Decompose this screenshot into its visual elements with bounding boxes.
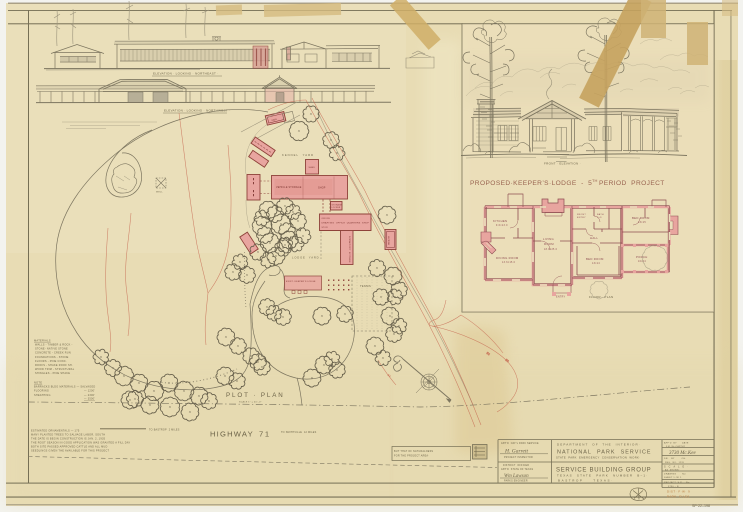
svg-text:EXIST· KEEPER’S LODGE: EXIST· KEEPER’S LODGE	[286, 281, 316, 283]
svg-text:PROJECT S.P. No·: PROJECT S.P. No·	[664, 482, 690, 484]
svg-text:PLOT · PLAN: PLOT · PLAN	[226, 392, 285, 399]
svg-text:BED ROOM: BED ROOM	[632, 216, 650, 220]
svg-text:FRONT: FRONT	[577, 214, 586, 216]
svg-text:BATH: BATH	[597, 213, 604, 216]
svg-text:S C A L E ·: S C A L E ·	[664, 466, 689, 469]
svg-text:BED ROOM: BED ROOM	[586, 257, 604, 261]
svg-text:PORCH: PORCH	[636, 255, 648, 259]
svg-text:9·6×13·0: 9·6×13·0	[496, 224, 508, 227]
svg-text:FLOORING: FLOORING	[34, 390, 49, 393]
svg-text:STATE PARK EMERGENCY CONSER: STATE PARK EMERGENCY CONSERVATION WORK·	[556, 455, 640, 459]
svg-text:DEPARTMENT OF THE INTERIOR·: DEPARTMENT OF THE INTERIOR·	[557, 442, 641, 446]
svg-text:DINING ROOM: DINING ROOM	[496, 256, 519, 260]
svg-text:BOTH SITE PASSED APPROVED CAT: BOTH SITE PASSED APPROVED CATTLE AND ALL…	[31, 446, 108, 449]
svg-text:CONCRETE - CREEK RUN: CONCRETE - CREEK RUN	[35, 352, 71, 355]
svg-text:NOTE: NOTE	[34, 381, 42, 385]
svg-text:TENNIS: TENNIS	[360, 284, 371, 288]
svg-text:THE DATE IS BEGIN CONSTRUCTIO: THE DATE IS BEGIN CONSTRUCTION IS JAN. 2…	[31, 438, 106, 441]
svg-text:SHOP: SHOP	[318, 187, 326, 190]
svg-text:3730 Mc.Kee: 3730 Mc.Kee	[669, 451, 696, 456]
svg-text:FOUNDATIONS - STONE: FOUNDATIONS - STONE	[35, 356, 69, 359]
svg-text:ENTRY: ENTRY	[556, 296, 566, 299]
svg-text:NATIONAL PARK SERVICE: NATIONAL PARK SERVICE	[557, 450, 652, 456]
svg-text:DRAFTING OFFICE QUARTERS SH: DRAFTING OFFICE QUARTERS SHOP	[322, 222, 370, 225]
svg-text:WOOD TRIM - STRUCTURAL: WOOD TRIM - STRUCTURAL	[35, 368, 75, 371]
svg-text:DRAWING No·: DRAWING No·	[664, 473, 687, 476]
svg-text:F.M. Mc-CARTHY: F.M. Mc-CARTHY	[666, 445, 686, 448]
svg-text:VEHICLE STORAGE: VEHICLE STORAGE	[276, 186, 302, 189]
svg-text:WALLS - TIMBER & ROCK -: WALLS - TIMBER & ROCK -	[35, 344, 73, 347]
svg-text:KENNEL YARD: KENNEL YARD	[282, 153, 314, 157]
svg-text:SCALE 1″ = 40′–0″: SCALE 1″ = 40′–0″	[239, 401, 262, 404]
svg-text:BUT THAT OF NATURALNESS: BUT THAT OF NATURALNESS	[394, 450, 433, 453]
svg-text:DORMITORY KITCHEN: DORMITORY KITCHEN	[348, 236, 350, 263]
svg-text:STONE- NATIVE STONE: STONE- NATIVE STONE	[35, 348, 68, 351]
svg-text:TO BASTROP 2 MILES: TO BASTROP 2 MILES	[149, 429, 180, 432]
svg-text:TEXAS STATE PARK NUMBER B–: TEXAS STATE PARK NUMBER B–1·	[557, 473, 648, 477]
svg-text:BARRACKS BLDG MATERIALS — SALV: BARRACKS BLDG MATERIALS — SALVAGED	[34, 386, 95, 389]
svg-text:PARKS ENGINEER: PARKS ENGINEER	[504, 480, 528, 483]
svg-text:7×9: 7×9	[597, 216, 602, 219]
svg-text:AS SHOWN·: AS SHOWN·	[665, 469, 680, 472]
svg-text:WELL: WELL	[156, 192, 163, 194]
svg-text:MANY PLANTED TREES TO SALVAGE: MANY PLANTED TREES TO SALVAGE LABOR, SOU…	[31, 434, 105, 437]
svg-text:13·6×15·0: 13·6×15·0	[502, 261, 516, 264]
svg-text:DIST· F·W· 9: DIST· F·W· 9	[667, 490, 690, 494]
svg-text:TH: TH	[592, 178, 597, 183]
svg-text:DISTRICT OFFICER: DISTRICT OFFICER	[503, 465, 529, 467]
svg-text:ENTRY: ENTRY	[577, 217, 586, 219]
svg-text:SHED: SHED	[309, 167, 316, 169]
svg-text:STOR: STOR	[322, 227, 329, 229]
svg-text:ESTIMATED ORNAMENTALS — 175: ESTIMATED ORNAMENTALS — 175	[31, 430, 80, 433]
svg-text:LODGE YARD: LODGE YARD	[292, 256, 319, 260]
svg-text:3730 – B: 3730 – B	[668, 486, 679, 488]
svg-text:ROOFS - SHAKE ROOF SH.: ROOFS - SHAKE ROOF SH.	[35, 364, 73, 367]
svg-text:13×14: 13×14	[592, 262, 600, 265]
svg-text:PROPOSED·KEEPER’S·LODGE - 5: PROPOSED·KEEPER’S·LODGE - 5	[470, 180, 592, 187]
svg-text:71: 71	[259, 430, 271, 439]
svg-text:PROJECT INSPECTOR: PROJECT INSPECTOR	[504, 457, 533, 459]
svg-text:KITCHEN: KITCHEN	[493, 219, 507, 223]
svg-text:LIVING: LIVING	[543, 237, 554, 241]
svg-text:SHEET 1 OF 1: SHEET 1 OF 1	[664, 477, 682, 479]
svg-text:SP·22–198: SP·22–198	[692, 504, 710, 508]
svg-text:— 3500′: — 3500′	[84, 398, 95, 401]
svg-text:HIGHWAY: HIGHWAY	[210, 430, 254, 439]
svg-text:18·0×25·0: 18·0×25·0	[544, 248, 558, 251]
svg-text:ELEVATION · LOOKING · NORTHEAS: ELEVATION · LOOKING · NORTHEAST ·	[153, 72, 219, 76]
svg-text:SHEATHING: SHEATHING	[34, 394, 51, 397]
svg-text:THE ROOT SEASON IN GOOD APPLIC: THE ROOT SEASON IN GOOD APPLICATION WAS …	[31, 442, 131, 445]
svg-text:OFFICE: OFFICE	[322, 218, 331, 220]
svg-text:— 1200′: — 1200′	[84, 390, 95, 393]
svg-text:APP’D NAT’L PARK SERVICE: APP’D NAT’L PARK SERVICE	[501, 442, 539, 445]
svg-text:APP’D BY DATE: APP’D BY DATE	[664, 442, 689, 445]
svg-text:SEEDLINGS GIVEN THE AVAILABLE: SEEDLINGS GIVEN THE AVAILABLE FOR THIS P…	[31, 450, 110, 453]
svg-text:REG· NO· 1235: REG· NO· 1235	[665, 462, 685, 464]
svg-text:SHINGLES - PINE SHAKE: SHINGLES - PINE SHAKE	[35, 372, 70, 375]
svg-text:FLOORS - PINE CONC.: FLOORS - PINE CONC.	[35, 360, 67, 363]
svg-text:BASTROP TEXAS·: BASTROP TEXAS·	[558, 478, 614, 482]
svg-text:LATRINE: LATRINE	[387, 236, 390, 246]
svg-text:APP’D STATE OF TEXAS: APP’D STATE OF TEXAS	[501, 468, 534, 471]
svg-text:HALL: HALL	[590, 236, 598, 240]
svg-text:PERIOD PROJECT: PERIOD PROJECT	[599, 180, 665, 187]
svg-text:TO SMITHVILLE 12 MILES: TO SMITHVILLE 12 MILES	[281, 431, 317, 434]
svg-text:PARK FILES: PARK FILES	[667, 495, 690, 499]
svg-text:LOCKER: LOCKER	[332, 207, 341, 209]
svg-text:DR· BY CH·: DR· BY CH·	[664, 458, 686, 460]
svg-text:FRONT · ELEVATION ·: FRONT · ELEVATION ·	[544, 162, 581, 166]
svg-text:ROOM: ROOM	[544, 242, 554, 246]
svg-text:— 2300′: — 2300′	[84, 394, 95, 397]
svg-text:FOR THE PROJECT AREA·: FOR THE PROJECT AREA·	[394, 455, 429, 458]
svg-text:13×15: 13×15	[638, 221, 646, 224]
svg-text:MATERIALS: MATERIALS	[34, 339, 51, 343]
